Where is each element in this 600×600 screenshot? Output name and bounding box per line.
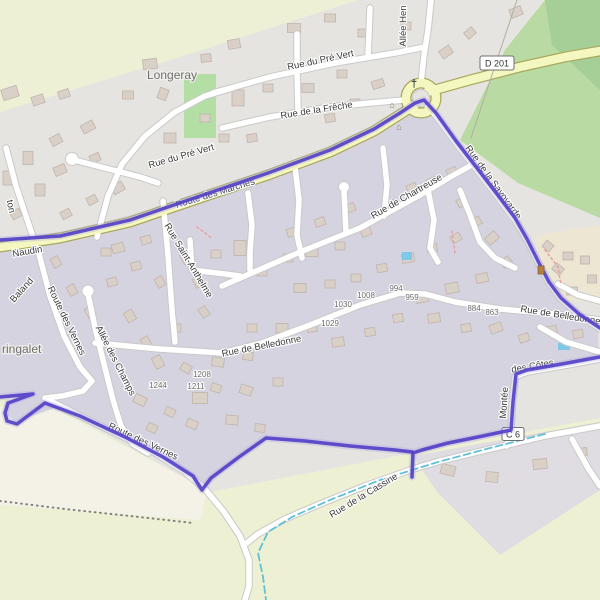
building — [247, 324, 257, 332]
building — [364, 327, 375, 336]
building — [219, 134, 229, 142]
road — [344, 190, 346, 232]
building — [445, 282, 460, 294]
building — [246, 133, 257, 142]
map-label: ringalet — [2, 342, 42, 356]
map-label: 1029 — [321, 319, 339, 328]
map-label: Longeray — [147, 68, 197, 82]
building — [234, 241, 246, 256]
building — [302, 84, 314, 93]
road — [297, 34, 298, 110]
building — [255, 424, 266, 433]
building — [475, 272, 489, 283]
building — [263, 84, 273, 92]
building — [486, 471, 499, 482]
building — [460, 323, 471, 332]
map-canvas[interactable]: Rue du Pré VertRue du Pré VertRue de la … — [0, 0, 600, 600]
building — [376, 263, 387, 273]
building — [101, 248, 111, 256]
map-label: 959 — [405, 293, 419, 302]
building — [200, 114, 210, 122]
building — [273, 378, 283, 386]
building — [294, 284, 306, 293]
building — [35, 184, 45, 196]
building — [572, 329, 583, 339]
building — [227, 39, 240, 50]
cross-icon: † — [411, 78, 417, 90]
building — [581, 256, 590, 264]
map-label: 863 — [485, 308, 499, 317]
building — [337, 70, 347, 78]
building — [335, 242, 345, 250]
building — [331, 337, 344, 348]
road-ref-shield: D 201 — [480, 56, 514, 70]
swimming-pool — [402, 252, 412, 260]
building — [23, 152, 33, 165]
building — [325, 280, 335, 288]
map-label: Allée Hen — [398, 5, 409, 46]
building — [123, 91, 134, 99]
building — [201, 54, 212, 63]
map-label: 1030 — [334, 300, 352, 309]
map-label: 1008 — [357, 291, 375, 300]
building — [563, 252, 573, 260]
hut-icon: ⌂ — [389, 100, 394, 110]
building — [211, 250, 221, 258]
building — [164, 133, 176, 143]
map-label: 994 — [389, 284, 403, 293]
building — [325, 14, 336, 22]
road — [368, 8, 370, 56]
building — [351, 274, 361, 282]
map-label: 1211 — [187, 382, 205, 391]
building — [533, 458, 548, 469]
postbox-icon — [538, 266, 544, 274]
building — [226, 415, 239, 425]
building — [324, 113, 335, 122]
building — [193, 393, 208, 404]
map-label: 884 — [467, 304, 481, 313]
map-label: 1244 — [149, 381, 167, 390]
building — [427, 313, 440, 324]
map-label: 1208 — [193, 370, 211, 379]
building — [232, 90, 244, 106]
building — [588, 275, 597, 283]
map-viewport[interactable]: Rue du Pré VertRue du Pré VertRue de la … — [0, 0, 600, 600]
building — [392, 313, 403, 322]
map-label: D 201 — [485, 59, 509, 69]
hut-icon: ⌂ — [396, 122, 401, 132]
